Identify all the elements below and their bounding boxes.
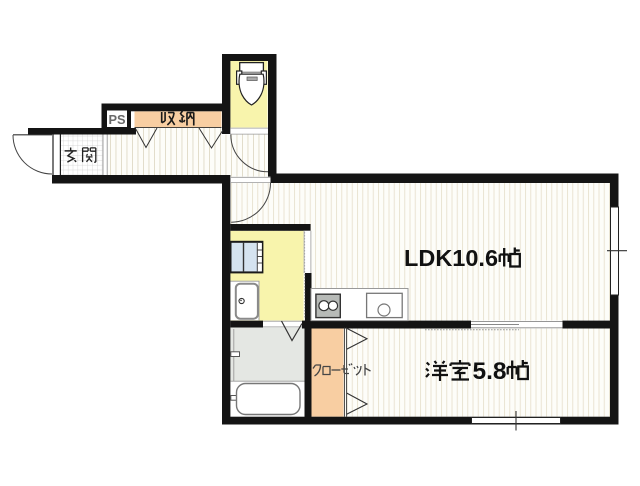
svg-text:5.8: 5.8 — [473, 358, 507, 385]
svg-text:PS: PS — [108, 112, 126, 127]
svg-text:LDK10.6: LDK10.6 — [404, 245, 498, 271]
